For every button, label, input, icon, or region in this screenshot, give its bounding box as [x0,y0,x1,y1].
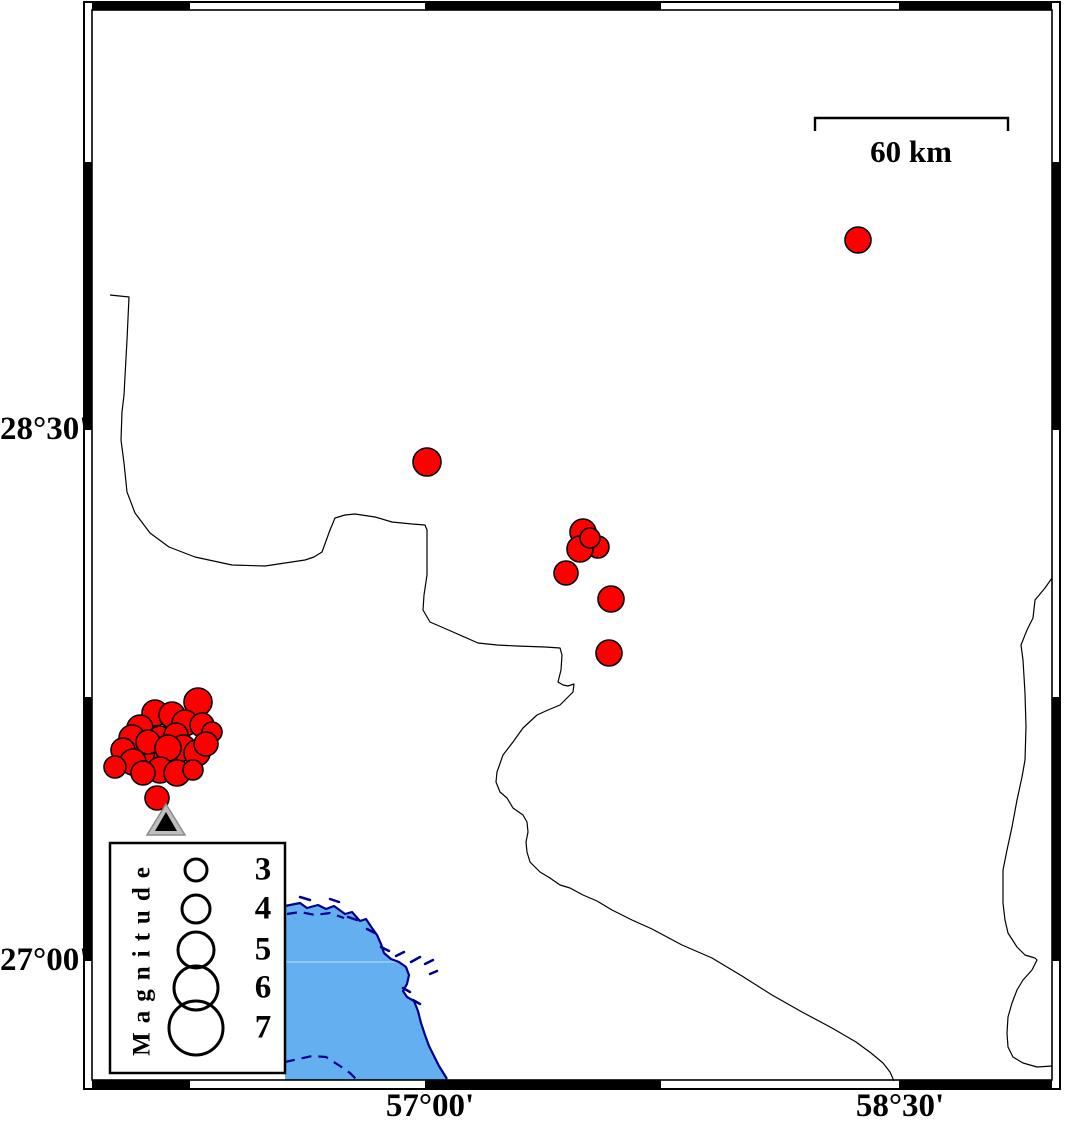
earthquake-marker [194,732,218,756]
legend-value-7: 7 [255,1012,272,1045]
earthquake-marker [183,760,203,780]
earthquake-marker [580,528,600,548]
earthquake-marker [596,640,622,666]
border-line [1003,578,1052,1067]
lat-label-27-00: 27°00' [0,944,86,977]
coast-islet [396,952,404,956]
legend-value-4: 4 [255,893,272,926]
coast-islet [411,957,420,962]
frame-segment-top [899,2,1052,10]
scalebar-bracket [815,118,1008,131]
legend-title: Magnitude [130,858,155,1056]
legend-value-6: 6 [255,972,272,1005]
legend-value-3: 3 [255,854,272,887]
frame-segment-top [425,2,661,10]
coast-islet [330,899,339,902]
earthquake-marker [104,756,126,778]
earthquake-marker [845,227,871,253]
frame-segment-top [92,2,190,10]
earthquake-marker [131,761,155,785]
coast-islet [300,897,310,900]
frame-segment-left [84,162,92,430]
lat-label-28-30: 28°30' [0,413,86,446]
lon-label-57-00: 57°00' [386,1090,474,1123]
coast-islet [425,960,433,964]
legend-value-5: 5 [255,934,272,967]
earthquake-marker [413,448,441,476]
earthquake-marker [598,586,624,612]
frame-segment-right [1052,162,1060,430]
frame-segment-right [1052,697,1060,961]
seismicity-map: 28°30' 27°00' 57°00' 58°30' 60 km Magnit… [0,0,1066,1126]
coast-islet [430,971,437,974]
lon-label-58-30: 58°30' [856,1090,944,1123]
frame-segment-bottom [92,1080,190,1089]
frame-segment-left [84,697,92,961]
earthquake-marker [554,561,578,585]
scalebar-label: 60 km [870,136,952,167]
